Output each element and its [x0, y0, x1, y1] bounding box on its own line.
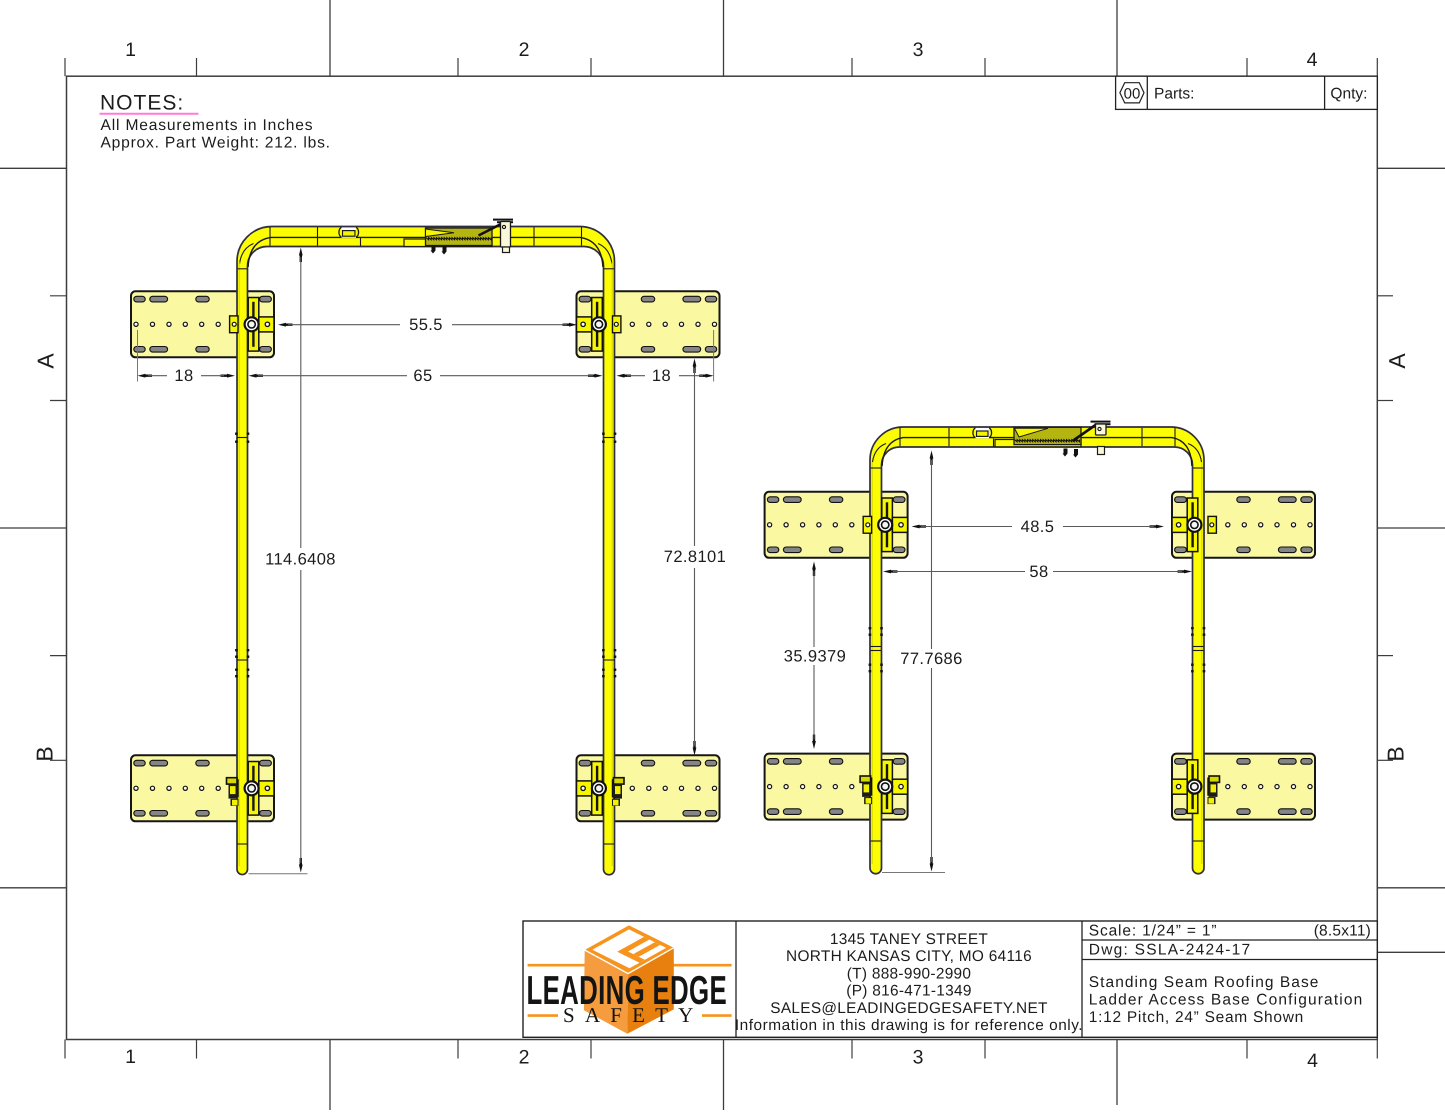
svg-text:(T) 888-990-2990: (T) 888-990-2990 [847, 965, 972, 982]
svg-text:Parts:: Parts: [1154, 85, 1194, 102]
svg-text:All Measurements in Inches: All Measurements in Inches [101, 117, 314, 134]
svg-text:18: 18 [174, 367, 193, 385]
svg-text:2: 2 [519, 1047, 530, 1069]
svg-text:48.5: 48.5 [1021, 518, 1055, 536]
svg-text:114.6408: 114.6408 [265, 551, 336, 569]
svg-text:Dwg: SSLA-2424-17: Dwg: SSLA-2424-17 [1089, 942, 1252, 959]
svg-text:3: 3 [913, 1047, 924, 1069]
svg-text:SAFETY: SAFETY [563, 1003, 704, 1027]
svg-text:1: 1 [125, 39, 136, 61]
svg-text:1: 1 [125, 1046, 136, 1068]
svg-text:Standing Seam Roofing Base: Standing Seam Roofing Base [1089, 974, 1320, 991]
svg-text:72.8101: 72.8101 [664, 548, 726, 566]
svg-text:NORTH KANSAS CITY, MO 64116: NORTH KANSAS CITY, MO 64116 [786, 948, 1032, 965]
svg-text:SALES@LEADINGEDGESAFETY.NET: SALES@LEADINGEDGESAFETY.NET [770, 1000, 1048, 1017]
svg-text:Ladder Access Base Configurati: Ladder Access Base Configuration [1089, 992, 1364, 1009]
svg-text:A: A [1384, 353, 1410, 369]
svg-text:A: A [33, 353, 59, 369]
svg-text:4: 4 [1307, 49, 1318, 71]
svg-text:1:12 Pitch, 24” Seam Shown: 1:12 Pitch, 24” Seam Shown [1089, 1009, 1304, 1026]
svg-text:3: 3 [913, 39, 924, 61]
svg-text:35.9379: 35.9379 [784, 648, 846, 666]
svg-text:B: B [32, 746, 58, 761]
svg-text:77.7686: 77.7686 [900, 650, 962, 668]
svg-text:(8.5x11): (8.5x11) [1314, 922, 1371, 939]
svg-text:B: B [1383, 746, 1409, 761]
svg-text:18: 18 [652, 367, 671, 385]
svg-text:Qnty:: Qnty: [1330, 85, 1367, 102]
svg-text:55.5: 55.5 [409, 316, 443, 334]
svg-text:58: 58 [1029, 563, 1048, 581]
svg-text:Scale: 1/24” = 1”: Scale: 1/24” = 1” [1089, 922, 1218, 939]
svg-text:00: 00 [1124, 85, 1141, 102]
svg-text:4: 4 [1307, 1050, 1318, 1072]
svg-text:Approx. Part Weight: 212. lbs.: Approx. Part Weight: 212. lbs. [101, 134, 331, 151]
svg-text:1345 TANEY STREET: 1345 TANEY STREET [830, 931, 989, 948]
svg-text:Information in this drawing is: Information in this drawing is for refer… [735, 1017, 1083, 1034]
svg-text:2: 2 [519, 39, 530, 61]
svg-text:(P) 816-471-1349: (P) 816-471-1349 [846, 983, 971, 1000]
svg-text:65: 65 [413, 367, 432, 385]
svg-text:NOTES:: NOTES: [100, 91, 184, 114]
